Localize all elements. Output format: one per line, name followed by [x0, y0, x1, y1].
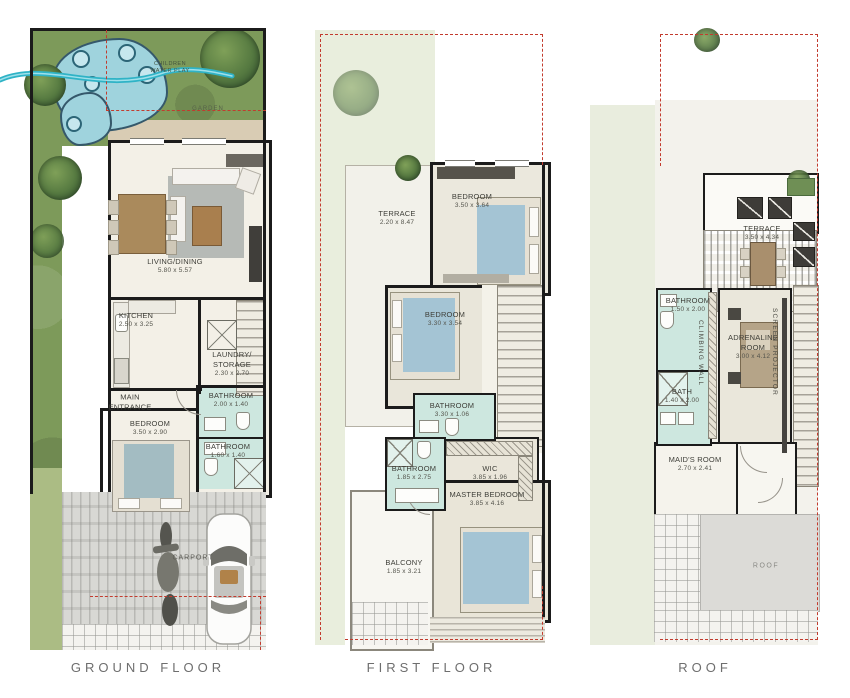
plot-wall-top — [30, 28, 266, 31]
tree — [333, 70, 379, 116]
tree — [694, 28, 720, 52]
bathroom-hall-label: BATHROOM 3.30 x 1.06 — [430, 401, 474, 419]
shower — [387, 439, 413, 467]
pergola-skylight — [793, 247, 815, 267]
pillow — [118, 498, 140, 509]
roof-terrace-label: TERRACE 3.50 x 4.34 — [743, 224, 780, 242]
laundry-storage-label: LAUNDRY/ STORAGE 2.30 x 2.70 — [212, 350, 251, 378]
pillow — [532, 535, 542, 563]
terrace-chair — [740, 266, 750, 278]
plot-dashed-line — [345, 639, 543, 640]
bathroom-sink — [419, 420, 439, 433]
bedroom-label: BEDROOM 3.50 x 2.90 — [130, 419, 170, 437]
window — [182, 138, 226, 145]
maids-room-label: MAID'S ROOM 2.70 x 2.41 — [669, 455, 722, 473]
pergola-skylight — [737, 197, 763, 219]
bath-sink — [678, 412, 694, 425]
terrace-chair — [776, 266, 786, 278]
pillow — [532, 570, 542, 598]
interior-wall — [198, 297, 201, 394]
terrace-label: TERRACE 2.20 x 8.47 — [378, 209, 415, 227]
roof-bath-label: BATH 1.40 x 2.00 — [665, 387, 699, 405]
tree — [395, 155, 421, 181]
garden-left-light — [30, 468, 62, 650]
sofa — [172, 168, 240, 185]
bed-blanket — [124, 444, 174, 498]
ground-floor-caption: GROUND FLOOR — [30, 660, 266, 675]
shower — [234, 458, 265, 489]
house-wall-right — [542, 162, 545, 617]
main-entrance-label: MAIN ENTRANCE — [109, 392, 152, 412]
plot-dashed-line — [106, 30, 107, 110]
interior-wall — [196, 385, 266, 388]
dining-chair — [166, 240, 177, 255]
bedroom-top-label: BEDROOM 3.50 x 3.64 — [452, 192, 492, 210]
toilet — [417, 441, 431, 459]
pillow — [392, 334, 402, 362]
screen-projector-label: SCREEN PROJECTOR — [771, 308, 778, 453]
first-floor-caption: FIRST FLOOR — [315, 660, 548, 675]
bath-sink — [660, 412, 676, 425]
water-feature-label: CHILDREN WATER PLAY — [150, 61, 189, 75]
tree — [38, 156, 82, 200]
kitchen-label: KITCHEN 2.50 x 3.25 — [119, 311, 153, 329]
bed-blanket — [463, 532, 529, 604]
roof-tiles — [654, 610, 818, 642]
stove — [114, 358, 129, 384]
roof-bathroom-label: BATHROOM 1.50 x 2.00 — [666, 296, 710, 314]
plot-dashed-line — [260, 596, 261, 650]
pillow — [392, 300, 402, 328]
terrace-table — [750, 242, 776, 286]
planter — [787, 178, 815, 196]
staircase — [236, 300, 266, 396]
balcony-label: BALCONY 1.85 x 3.21 — [385, 558, 422, 576]
ground-floor-plan: CHILDREN WATER PLAY GARDEN LIVING/DINING… — [30, 28, 266, 650]
plot-dashed-line — [660, 34, 818, 35]
plot-dashed-line — [660, 639, 818, 640]
window — [130, 138, 164, 145]
tv-cabinet — [249, 226, 262, 282]
maids-room-floor — [654, 442, 740, 516]
living-dining-label: LIVING/DINING 5.80 x 5.57 — [147, 257, 203, 275]
dining-table — [118, 194, 166, 254]
staircase — [497, 285, 545, 447]
double-sink — [395, 488, 439, 503]
toilet — [236, 412, 250, 430]
bathroom-top-label: BATHROOM 2.00 x 1.40 — [209, 391, 253, 409]
car — [203, 512, 255, 646]
wardrobe — [446, 441, 533, 456]
seat-cube — [728, 308, 741, 320]
interior-wall — [100, 408, 103, 492]
plot-wall-left — [30, 28, 33, 494]
pillow — [160, 498, 182, 509]
pillow — [529, 207, 539, 237]
pergola-skylight — [793, 222, 815, 241]
toilet — [204, 458, 218, 476]
seat-cube — [728, 372, 741, 384]
wardrobe — [226, 154, 264, 167]
plot-dashed-line — [320, 34, 543, 35]
dining-chair — [108, 200, 119, 215]
bench — [443, 274, 509, 283]
stream-waterway — [0, 52, 252, 102]
plot-dashed-line — [542, 34, 543, 165]
window — [495, 160, 529, 167]
plot-dashed-line — [106, 110, 266, 111]
climbing-wall-label: CLIMBING WALL — [697, 320, 704, 440]
toilet — [445, 418, 459, 436]
pillow — [529, 244, 539, 274]
garden-tint-left — [590, 105, 655, 645]
carport-label: CARPORT — [172, 553, 213, 562]
roof-tiles — [654, 514, 700, 610]
dining-chair — [108, 240, 119, 255]
terrace-chair — [740, 248, 750, 260]
pond-stone — [66, 116, 82, 132]
flat-roof-label: ROOF — [753, 561, 779, 570]
interior-wall — [110, 297, 266, 300]
interior-wall — [196, 437, 266, 439]
plot-dashed-line — [90, 596, 266, 597]
dining-chair — [166, 200, 177, 215]
bathroom-sink — [204, 417, 226, 431]
washing-machine — [207, 320, 237, 350]
plot-dashed-line — [817, 34, 818, 640]
wic-label: WIC 3.85 x 1.96 — [473, 464, 507, 482]
terrace-chair — [776, 248, 786, 260]
roof-plan: TERRACE 3.50 x 4.34 BATHROOM 1.50 x 2.00… — [590, 30, 820, 645]
roof-caption: ROOF — [590, 660, 820, 675]
first-floor-plan: TERRACE 2.20 x 8.47 BEDROOM 3.50 x 3.64 … — [315, 30, 548, 645]
window — [445, 160, 475, 167]
motorcycle — [148, 520, 188, 632]
wardrobe — [437, 167, 515, 179]
plot-dashed-line — [660, 34, 661, 166]
garden-label: GARDEN — [192, 106, 224, 114]
coffee-table — [192, 206, 222, 246]
dining-chair — [108, 220, 119, 235]
bedroom-middle-label: BEDROOM 3.30 x 3.54 — [425, 310, 465, 328]
master-bedroom-label: MASTER BEDROOM 3.85 x 4.16 — [450, 490, 525, 508]
plot-dashed-line — [320, 34, 321, 640]
bathroom-bottom-label: BATHROOM 1.60 x 1.40 — [206, 442, 250, 460]
projector-screen — [782, 298, 787, 453]
pergola-skylight — [768, 197, 792, 219]
bed-blanket — [477, 205, 525, 275]
plot-dashed-line — [542, 586, 543, 640]
plot-wall-right — [263, 28, 266, 492]
tree — [30, 224, 64, 258]
dining-chair — [166, 220, 177, 235]
bathroom-master-label: BATHROOM 1.85 x 2.75 — [392, 464, 436, 482]
